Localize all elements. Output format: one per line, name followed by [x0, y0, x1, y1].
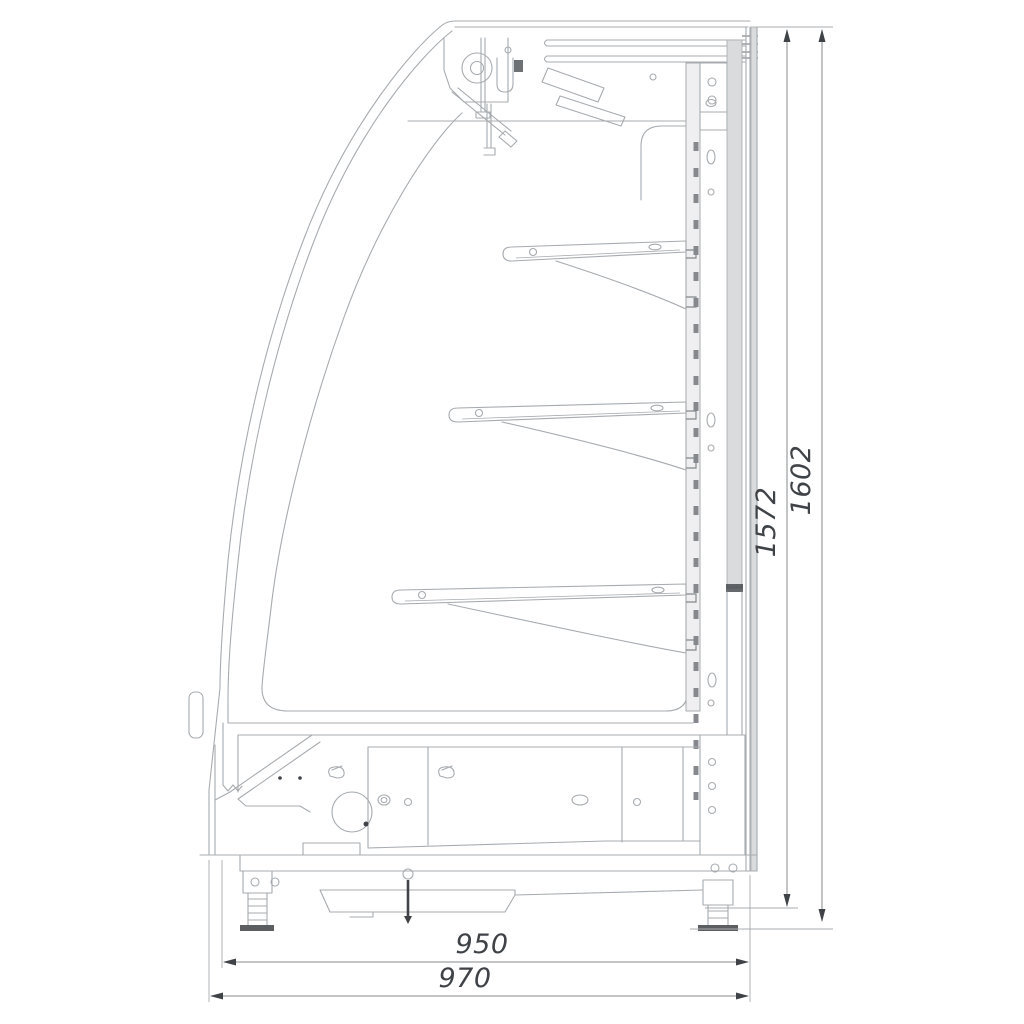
- duct-end-cap: [726, 584, 743, 592]
- screw-hole: [405, 799, 412, 806]
- grommet: [378, 795, 390, 805]
- shelf-3: [392, 584, 696, 653]
- lamp-housing: [444, 38, 508, 102]
- outer-back-panel: [751, 27, 757, 871]
- dim-body-depth-label: 950: [455, 929, 508, 960]
- top-rails: [545, 36, 759, 62]
- ballast-box: [497, 58, 513, 92]
- screw-hole: [251, 878, 259, 886]
- compressor-plinth: [303, 843, 360, 855]
- dim-overall-depth: 970: [210, 963, 749, 1000]
- technical-drawing-canvas: 1572 1602 950 970: [0, 0, 1024, 1024]
- front-adjustable-foot: [240, 871, 274, 931]
- duct-lower-lines: [727, 592, 742, 735]
- shelf-bracket: [448, 584, 686, 653]
- terminal-block: [514, 60, 523, 72]
- curved-front-glass: [189, 21, 455, 855]
- air-deflector: [542, 68, 625, 126]
- drain-pipe-end: [404, 916, 412, 924]
- top-canopy: [444, 21, 758, 155]
- shelf-slot: [649, 244, 661, 250]
- dim-overall-height-label: 1602: [786, 445, 817, 516]
- front-bumper-rail: [189, 692, 203, 738]
- shelf-hole: [419, 592, 426, 599]
- back-fasteners: [706, 100, 716, 814]
- handle-slot: [572, 795, 588, 805]
- screw-hole: [708, 78, 716, 86]
- shelf-2: [449, 402, 696, 470]
- interior-liner: [228, 113, 693, 723]
- liner-curve: [262, 113, 688, 711]
- rear-panel-stack: [686, 27, 757, 871]
- rear-base-bracket: [700, 735, 745, 855]
- dim-overall-height: 1602: [786, 29, 826, 922]
- shelf-hole: [530, 249, 537, 256]
- screw-hole: [634, 799, 641, 806]
- screw-hole: [650, 74, 656, 80]
- base-compartment: [215, 735, 700, 855]
- glass-inner-curve: [228, 31, 452, 723]
- dim-overall-depth-label: 970: [438, 963, 491, 994]
- display-case-section-drawing: 1572 1602 950 970: [0, 0, 1024, 1024]
- rear-air-duct: [727, 40, 742, 588]
- shelf-1: [503, 241, 696, 309]
- drain-tray: [320, 869, 703, 924]
- glass-outer-curve: [209, 21, 455, 855]
- cable-clips: [329, 766, 454, 778]
- bumper-detail: [215, 792, 310, 812]
- shelf-slot: [652, 587, 664, 593]
- shelf-hole: [476, 410, 483, 417]
- shelf-slot: [651, 405, 663, 411]
- front-bumper-slope: [230, 735, 320, 799]
- compartment-walls: [368, 747, 700, 848]
- lamp-tube-outer: [462, 53, 492, 83]
- shelf-bracket: [502, 402, 686, 470]
- duct-outlet-corner: [641, 126, 686, 200]
- dim-body-depth: 950: [223, 929, 749, 966]
- bottom-frame: [200, 855, 757, 931]
- dim-body-height-label: 1572: [751, 487, 782, 558]
- rear-adjustable-foot: [698, 880, 738, 931]
- shelf-bracket: [556, 241, 686, 309]
